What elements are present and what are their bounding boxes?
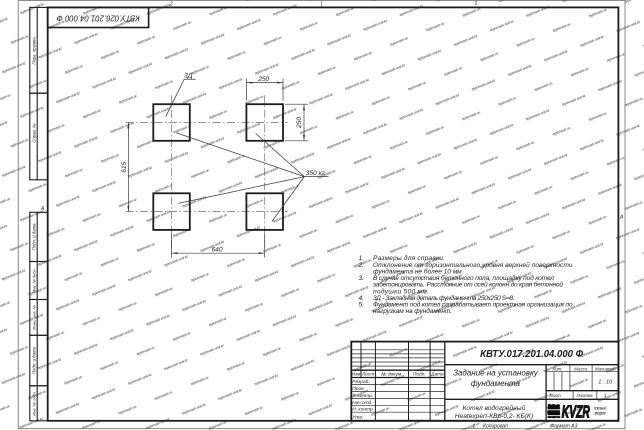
- svg-text:Задание на установку: Задание на установку: [453, 369, 539, 378]
- svg-text:Масса: Масса: [574, 366, 588, 371]
- svg-text:№ докум.: № докум.: [381, 372, 402, 378]
- svg-text:5.: 5.: [359, 302, 365, 309]
- svg-text:Пров.: Пров.: [352, 386, 365, 392]
- svg-text:ЗАВОД КВЗР: ЗАВОД КВЗР: [594, 412, 607, 416]
- svg-text:А: А: [40, 206, 45, 212]
- svg-text:Утв.: Утв.: [352, 415, 363, 421]
- svg-text:Справ. №: Справ. №: [32, 123, 37, 143]
- svg-text:Копировал: Копировал: [483, 424, 508, 430]
- svg-text:КВТУ.026.201.04.000 Ф: КВТУ.026.201.04.000 Ф: [57, 13, 140, 22]
- svg-text:Нач.отд.: Нач.отд.: [352, 400, 372, 406]
- svg-text:Взам. инв. №: Взам. инв. №: [32, 304, 37, 329]
- svg-text:1 : 10: 1 : 10: [598, 379, 613, 385]
- svg-text:Инв. № подл.: Инв. № подл.: [32, 391, 37, 416]
- svg-text:Разраб.: Разраб.: [352, 379, 369, 385]
- svg-text:Лист: Лист: [549, 393, 562, 398]
- svg-text:КВТУ.017.201.04.000 Ф: КВТУ.017.201.04.000 Ф: [480, 349, 583, 360]
- svg-text:Подп. и дата: Подп. и дата: [32, 223, 37, 251]
- svg-text:КОТЕЛЬНЫЙ: КОТЕЛЬНЫЙ: [594, 406, 607, 410]
- svg-text:Котел водогрейный: Котел водогрейный: [463, 404, 526, 412]
- svg-text:2.: 2.: [358, 262, 365, 269]
- svg-text:Дата: Дата: [430, 372, 444, 378]
- svg-text:нагрузкам на фундамент.: нагрузкам на фундамент.: [373, 307, 452, 315]
- svg-text:Н. контр.: Н. контр.: [352, 407, 374, 413]
- svg-text:Изм: Изм: [352, 372, 362, 378]
- svg-text:640: 640: [211, 246, 222, 253]
- svg-text:1: 1: [475, 1, 478, 7]
- svg-text:3Д: 3Д: [184, 72, 193, 79]
- svg-text:Листов: Листов: [576, 393, 594, 398]
- svg-text:А: А: [619, 214, 624, 220]
- svg-text:615: 615: [121, 161, 128, 172]
- svg-text:Т. контр.: Т. контр.: [352, 393, 373, 399]
- svg-text:Формат А3: Формат А3: [550, 424, 578, 430]
- svg-text:Heatexpert-КВр-0,2- КБ(К): Heatexpert-КВр-0,2- КБ(К): [455, 413, 533, 420]
- svg-text:1: 1: [473, 424, 476, 430]
- svg-text:250: 250: [296, 117, 303, 129]
- svg-text:фундамента: фундамента: [471, 379, 521, 388]
- svg-text:Масштаб: Масштаб: [595, 366, 616, 371]
- svg-text:KVZR: KVZR: [562, 402, 590, 422]
- svg-text:Подп.: Подп.: [413, 372, 426, 378]
- svg-text:Инв. № дубл.: Инв. № дубл.: [32, 268, 37, 293]
- svg-text:350 кг: 350 кг: [306, 170, 326, 177]
- svg-text:Лит.: Лит.: [551, 366, 562, 371]
- svg-text:3.: 3.: [359, 275, 365, 282]
- svg-text:Подп. и дата: Подп. и дата: [32, 347, 37, 375]
- svg-text:250: 250: [257, 76, 269, 83]
- svg-text:Лист: Лист: [361, 372, 374, 378]
- svg-text:Перв. примен.: Перв. примен.: [32, 36, 37, 65]
